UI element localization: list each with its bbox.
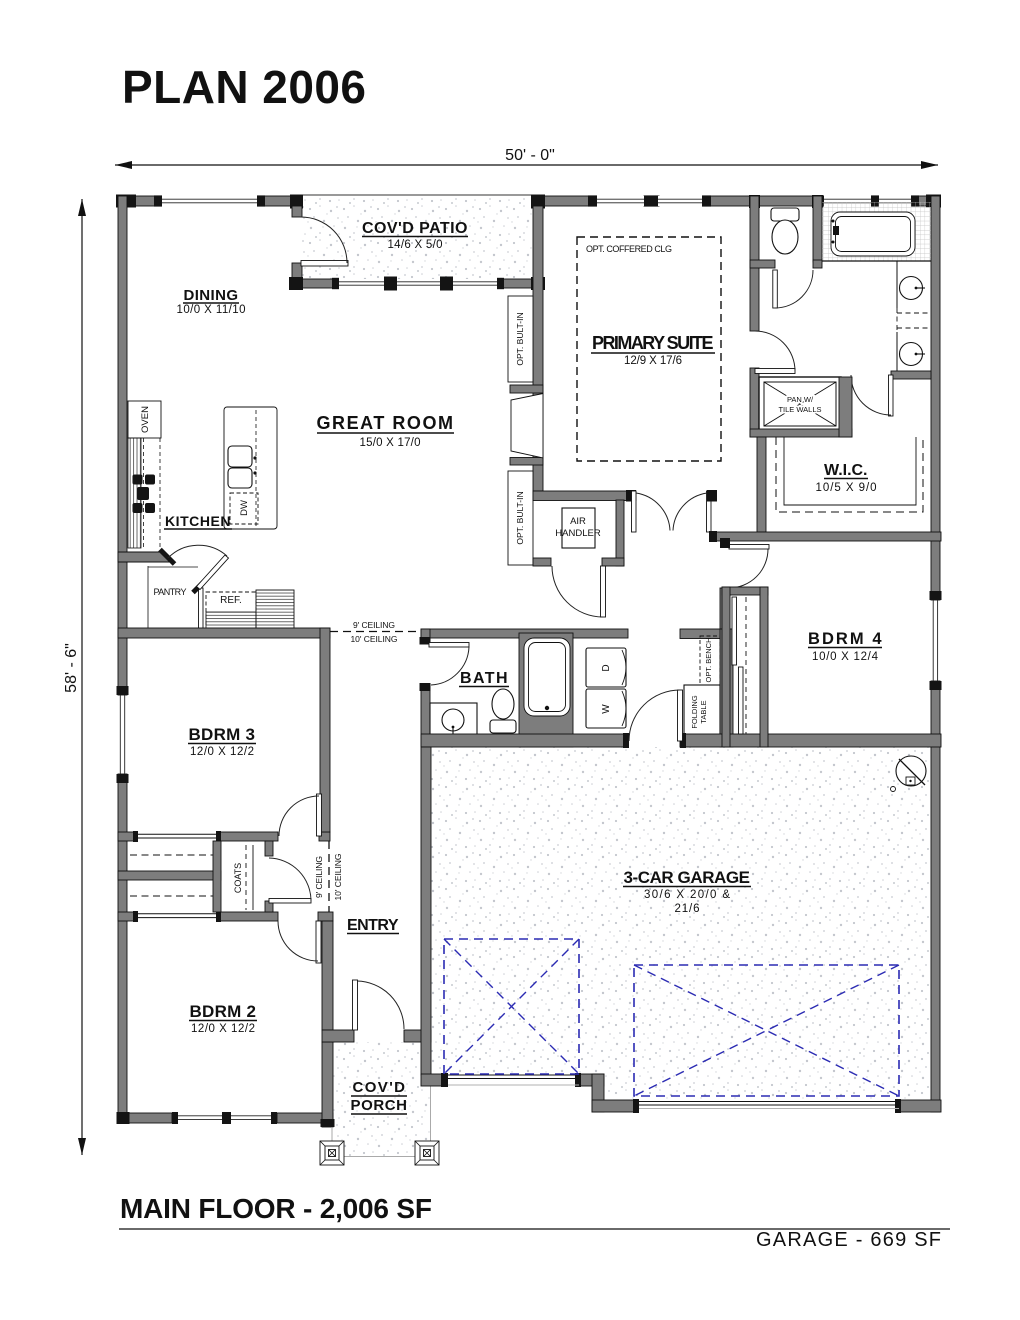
svg-text:HANDLER: HANDLER	[555, 528, 601, 539]
svg-text:10/0 X 11/10: 10/0 X 11/10	[177, 304, 246, 316]
svg-text:3-CAR GARAGE: 3-CAR GARAGE	[624, 868, 751, 887]
svg-text:BDRM 3: BDRM 3	[189, 725, 256, 744]
svg-text:BDRM 2: BDRM 2	[190, 1002, 257, 1021]
svg-text:AIR: AIR	[570, 516, 586, 527]
svg-text:PANTRY: PANTRY	[154, 587, 187, 597]
svg-text:COATS: COATS	[233, 863, 243, 893]
svg-text:12/0 X 12/2: 12/0 X 12/2	[190, 746, 254, 758]
svg-text:KITCHEN: KITCHEN	[165, 513, 231, 529]
svg-text:COV'D PATIO: COV'D PATIO	[362, 220, 468, 237]
svg-text:DINING: DINING	[184, 287, 239, 304]
svg-text:PRIMARY SUITE: PRIMARY SUITE	[592, 333, 714, 353]
svg-text:15/0 X 17/0: 15/0 X 17/0	[360, 437, 421, 449]
svg-text:30/6 X 20/0 &: 30/6 X 20/0 &	[644, 889, 730, 901]
svg-text:COV'D: COV'D	[353, 1079, 406, 1096]
svg-text:FOLDING: FOLDING	[690, 695, 699, 729]
svg-text:9' CEILING: 9' CEILING	[353, 620, 395, 630]
svg-text:PORCH: PORCH	[351, 1097, 408, 1114]
svg-text:GREAT ROOM: GREAT ROOM	[317, 413, 454, 433]
svg-text:14/6 X 5/0: 14/6 X 5/0	[388, 239, 443, 251]
svg-text:10/5 X 9/0: 10/5 X 9/0	[816, 482, 877, 494]
svg-text:W.I.C.: W.I.C.	[824, 462, 868, 479]
svg-text:10' CEILING: 10' CEILING	[333, 854, 343, 901]
svg-text:ENTRY: ENTRY	[347, 917, 399, 934]
svg-text:OVEN: OVEN	[140, 406, 151, 433]
svg-text:50' - 0": 50' - 0"	[505, 147, 555, 164]
svg-text:GARAGE - 669 SF: GARAGE - 669 SF	[756, 1229, 941, 1251]
svg-text:REF.: REF.	[220, 595, 242, 606]
svg-text:W: W	[601, 704, 612, 714]
svg-text:PLAN 2006: PLAN 2006	[122, 61, 370, 113]
svg-text:D: D	[601, 664, 612, 671]
svg-text:PAN W/: PAN W/	[787, 395, 814, 404]
svg-text:21/6: 21/6	[675, 903, 700, 915]
svg-text:OPT. BENCH: OPT. BENCH	[704, 637, 713, 682]
svg-text:BATH: BATH	[460, 670, 508, 687]
svg-text:12/9 X 17/6: 12/9 X 17/6	[624, 355, 682, 367]
svg-text:OPT. COFFERED CLG: OPT. COFFERED CLG	[586, 244, 672, 254]
svg-text:TABLE: TABLE	[699, 700, 708, 723]
svg-text:MAIN FLOOR - 2,006 SF: MAIN FLOOR - 2,006 SF	[120, 1193, 433, 1224]
svg-text:DW: DW	[239, 500, 250, 516]
svg-text:OPT. BULT-IN: OPT. BULT-IN	[515, 491, 525, 544]
svg-text:12/0 X 12/2: 12/0 X 12/2	[191, 1023, 255, 1035]
svg-text:10/0 X 12/4: 10/0 X 12/4	[812, 651, 879, 663]
svg-text:9' CEILING: 9' CEILING	[314, 856, 324, 898]
svg-text:OPT. BULT-IN: OPT. BULT-IN	[515, 312, 525, 365]
svg-text:58' - 6": 58' - 6"	[63, 643, 80, 693]
svg-text:10' CEILING: 10' CEILING	[351, 634, 398, 644]
svg-text:TILE WALLS: TILE WALLS	[778, 405, 821, 414]
